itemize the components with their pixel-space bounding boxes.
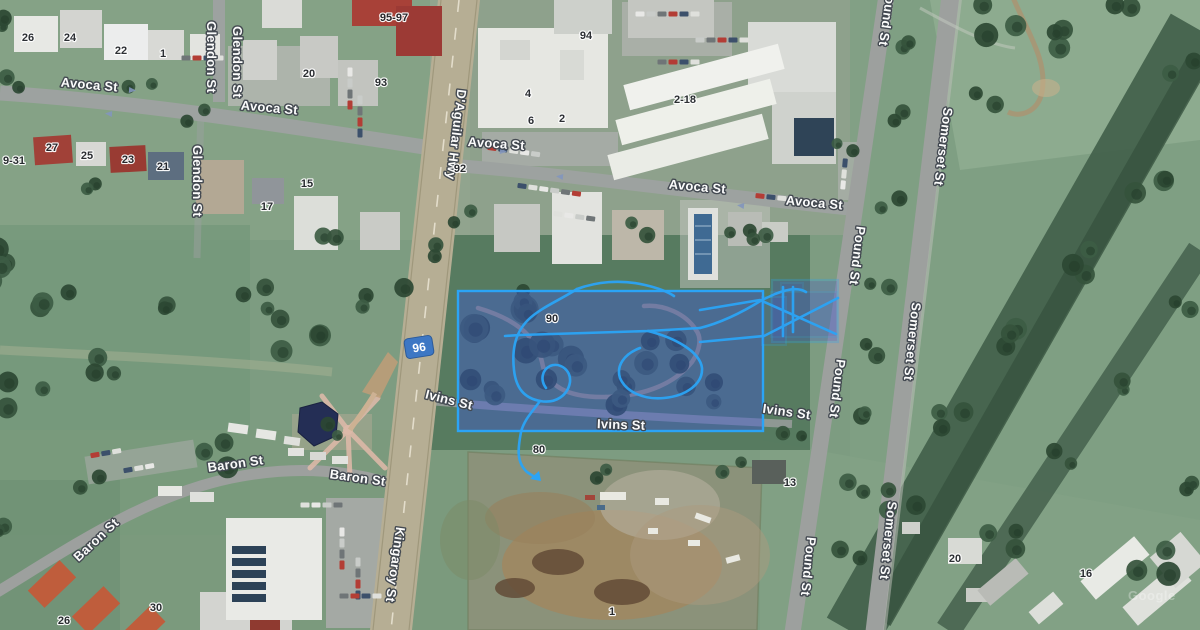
tree-shadow [861, 490, 868, 497]
building [612, 210, 664, 260]
building [554, 0, 612, 34]
address-label: 26 [58, 615, 70, 627]
tree-shadow [1, 15, 9, 23]
tree-shadow [751, 237, 758, 244]
car [356, 569, 361, 578]
address-label: 4 [525, 88, 532, 100]
tree-shadow [845, 479, 854, 488]
car [840, 180, 846, 189]
street-label: Ivins St [597, 416, 646, 433]
tree-shadow [1162, 547, 1172, 557]
car [691, 60, 700, 65]
building [752, 460, 786, 484]
tree-shadow [1163, 177, 1171, 185]
tree-shadow [595, 476, 602, 483]
address-label: 94 [580, 30, 593, 42]
car [356, 558, 361, 567]
car [348, 68, 353, 77]
address-label: 2-18 [674, 94, 696, 106]
address-label: 20 [303, 68, 315, 80]
tree-shadow [939, 425, 948, 434]
tree-shadow [277, 316, 286, 325]
address-label: 24 [64, 32, 77, 44]
tree-shadow [906, 40, 913, 47]
tree-shadow [979, 2, 988, 11]
route-shield-number: 96 [411, 339, 427, 355]
tree-shadow [150, 82, 156, 88]
car [358, 96, 363, 105]
street-label: Glendon St [230, 26, 245, 98]
swimming-pool [694, 214, 712, 274]
tree-shadow [1007, 331, 1016, 340]
building [262, 0, 302, 28]
address-label: 93 [375, 77, 387, 89]
tree-shadow [40, 387, 48, 395]
building [628, 0, 714, 38]
tree-shadow [336, 434, 341, 439]
tree-shadow [1055, 44, 1066, 55]
tree-shadow [278, 347, 289, 358]
address-label: 21 [157, 161, 169, 173]
address-label: 95-97 [380, 12, 408, 24]
address-label: 25 [81, 150, 93, 162]
car [658, 12, 667, 17]
tree-shadow [858, 556, 865, 563]
tree-shadow [912, 502, 922, 512]
tree-shadow [326, 422, 333, 429]
route-shield-96: 96 [404, 335, 435, 359]
car [669, 60, 678, 65]
satellite-map[interactable]: 96 Google Glendon StGlendon StAvoca StAv… [0, 0, 1200, 630]
tree-shadow [1052, 448, 1060, 456]
car [348, 79, 353, 88]
car [323, 503, 332, 508]
tree-shadow [893, 119, 900, 126]
tree-shadow [1131, 189, 1142, 200]
car [340, 550, 345, 559]
tree-shadow [1133, 567, 1144, 578]
address-label: 1 [160, 48, 166, 60]
tree-shadow [974, 91, 981, 98]
tree-shadow [1069, 462, 1075, 468]
address-label: 2 [559, 113, 565, 125]
car [718, 38, 727, 43]
tree-shadow [1164, 569, 1176, 581]
tree-shadow [1012, 22, 1023, 33]
tree-shadow [985, 530, 994, 539]
address-label: 13 [784, 477, 796, 489]
tree-shadow [266, 307, 273, 314]
tree-shadow [1184, 487, 1191, 494]
tree-shadow [960, 409, 970, 419]
address-label: 23 [122, 154, 134, 166]
tree-shadow [1112, 2, 1121, 11]
tree-shadow [1003, 343, 1013, 353]
tree-shadow [201, 449, 210, 458]
building [552, 192, 602, 264]
car [647, 12, 656, 17]
car [755, 193, 764, 199]
tree-shadow [992, 102, 1001, 111]
tree-shadow [781, 431, 788, 438]
car [729, 38, 738, 43]
building [288, 448, 304, 456]
tree-shadow [1012, 545, 1022, 555]
tree-shadow [645, 232, 653, 240]
address-label: 6 [528, 115, 534, 127]
tree-shadow [86, 187, 92, 193]
tree-shadow [887, 284, 895, 292]
car [707, 38, 716, 43]
tree-shadow [1127, 4, 1137, 14]
building [190, 492, 214, 502]
tree-shadow [452, 221, 458, 227]
car [841, 169, 847, 178]
address-label: 15 [301, 178, 313, 190]
car [340, 528, 345, 537]
car [348, 90, 353, 99]
tree-shadow [361, 305, 368, 312]
building [478, 28, 608, 128]
tree-shadow [1119, 378, 1127, 386]
tree-shadow [900, 110, 908, 118]
tree-shadow [364, 293, 372, 301]
tree-shadow [316, 332, 325, 341]
car [351, 594, 360, 599]
satellite-map-canvas[interactable]: 96 Google Glendon StGlendon StAvoca StAv… [0, 0, 1200, 630]
address-label: 1 [609, 606, 615, 618]
car [340, 539, 345, 548]
car [680, 12, 689, 17]
car [362, 594, 371, 599]
tree-shadow [333, 235, 341, 243]
tree-shadow [78, 485, 85, 492]
car [842, 158, 848, 167]
car [358, 107, 363, 116]
tree-shadow [92, 369, 101, 378]
building [158, 486, 182, 496]
street-label: Glendon St [190, 145, 205, 217]
tree-shadow [1069, 261, 1080, 272]
car [696, 38, 705, 43]
address-label: 27 [46, 142, 58, 154]
car [373, 594, 382, 599]
tree-shadow [851, 149, 858, 156]
tree-shadow [720, 470, 727, 477]
address-label: 20 [949, 553, 961, 565]
tree-shadow [3, 404, 13, 414]
car [312, 503, 321, 508]
car [334, 503, 343, 508]
car [358, 129, 363, 138]
car [193, 56, 202, 61]
tree-shadow [185, 119, 192, 126]
tree-shadow [97, 475, 104, 482]
car [766, 194, 775, 200]
address-label: 92 [454, 163, 466, 175]
street-label: Glendon St [204, 21, 219, 93]
car [636, 12, 645, 17]
building [14, 16, 58, 52]
address-label: 26 [22, 32, 34, 44]
car [301, 503, 310, 508]
tree-shadow [1052, 30, 1060, 38]
tree-shadow [605, 468, 611, 474]
building [310, 452, 326, 460]
tree-shadow [469, 209, 476, 216]
car [340, 561, 345, 570]
address-label: 90 [546, 313, 558, 325]
tree-shadow [630, 221, 636, 227]
car [680, 60, 689, 65]
building [243, 40, 277, 80]
tree-shadow [869, 282, 875, 288]
tree-shadow [1086, 247, 1095, 256]
tree-shadow [1191, 58, 1199, 66]
google-watermark: Google [1128, 588, 1176, 603]
tree-shadow [1168, 71, 1176, 79]
address-label: 80 [533, 444, 545, 456]
tree-shadow [897, 196, 905, 204]
tree-shadow [112, 371, 119, 378]
tree-shadow [401, 284, 411, 294]
tree-shadow [864, 343, 870, 349]
tree-shadow [262, 284, 271, 293]
tree-shadow [886, 488, 894, 496]
address-label: 16 [1080, 568, 1092, 580]
tree-shadow [763, 233, 771, 241]
tree-shadow [1082, 271, 1092, 281]
tree-shadow [221, 439, 230, 448]
tree-shadow [800, 435, 805, 440]
tree-shadow [163, 306, 170, 313]
building [794, 118, 834, 156]
car [691, 12, 700, 17]
car [358, 118, 363, 127]
building [332, 456, 348, 464]
dirt-lot [440, 452, 770, 630]
tree-shadow [66, 290, 74, 298]
car [658, 60, 667, 65]
building [494, 204, 540, 252]
tree-shadow [434, 243, 442, 251]
address-label: 22 [115, 45, 127, 57]
tree-shadow [93, 182, 100, 189]
tree-shadow [4, 75, 12, 83]
address-label: 9-31 [3, 155, 25, 167]
tree-shadow [982, 30, 994, 42]
car [348, 101, 353, 110]
tree-shadow [433, 254, 440, 261]
tree-shadow [729, 231, 735, 237]
tree-shadow [203, 108, 209, 114]
tree-shadow [874, 353, 883, 362]
selection-rectangle-fill [458, 291, 763, 431]
tree-shadow [94, 354, 104, 364]
tree-shadow [17, 86, 23, 92]
car [740, 38, 749, 43]
tree-shadow [39, 299, 50, 310]
tree-shadow [1174, 300, 1181, 307]
car [340, 594, 349, 599]
tree-shadow [863, 411, 870, 418]
tree-shadow [836, 142, 842, 148]
tree-shadow [837, 547, 846, 556]
tree-shadow [937, 410, 945, 418]
address-label: 30 [150, 602, 162, 614]
tree-shadow [1014, 529, 1021, 536]
building [902, 522, 920, 534]
tree-shadow [879, 206, 885, 212]
tree-shadow [241, 292, 249, 300]
tree-shadow [4, 378, 14, 388]
tree-shadow [1187, 307, 1196, 316]
car [356, 580, 361, 589]
car [182, 56, 191, 61]
tree-shadow [740, 461, 746, 467]
building [360, 212, 400, 250]
car [669, 12, 678, 17]
address-label: 17 [261, 201, 273, 213]
building [226, 518, 322, 620]
